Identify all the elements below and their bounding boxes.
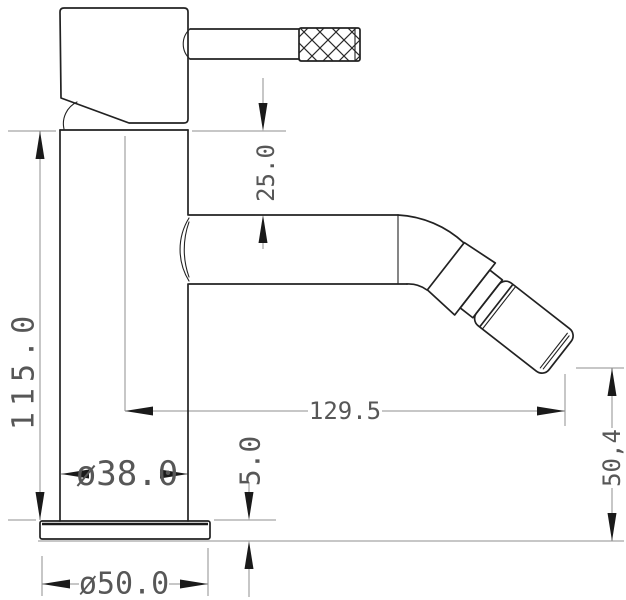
dimension-labels: 25.0 115.0 129.5 ø38.0 5.0 50,4 ø50.0 xyxy=(7,144,626,600)
arrowhead xyxy=(36,492,45,520)
lever-flange-arc xyxy=(183,29,190,59)
spout-elbow xyxy=(398,215,464,243)
spray-head-ring xyxy=(480,285,512,326)
arrowhead xyxy=(608,368,617,396)
dimension-label-body-diameter: ø38.0 xyxy=(76,454,178,494)
dimension-label-handle-to-spout: 25.0 xyxy=(252,144,280,202)
arrowhead xyxy=(125,407,153,416)
dimension-arrowheads xyxy=(36,103,617,589)
arrowhead xyxy=(245,541,254,569)
arrowhead xyxy=(537,407,565,416)
technical-drawing-canvas: 25.0 115.0 129.5 ø38.0 5.0 50,4 ø50.0 xyxy=(0,0,626,600)
arrowhead xyxy=(259,215,268,243)
dimension-label-spout-reach: 129.5 xyxy=(309,397,381,425)
spout-elbow xyxy=(407,284,427,290)
arrowhead xyxy=(42,580,70,589)
dimension-label-base-thickness: 5.0 xyxy=(234,436,267,487)
arrowhead xyxy=(180,580,208,589)
mixer-handle-housing xyxy=(60,8,188,123)
outlet-neck xyxy=(460,270,502,318)
spray-head-ring xyxy=(483,287,515,328)
handle-pivot-arc xyxy=(63,102,77,129)
arrowhead xyxy=(259,103,268,131)
dimension-label-outlet-height: 50,4 xyxy=(598,429,626,487)
arrowhead xyxy=(245,492,254,520)
knurled-grip xyxy=(299,28,360,61)
dimension-label-body-height: 115.0 xyxy=(7,310,42,430)
arrowhead xyxy=(36,131,45,159)
body-spout-joint xyxy=(184,222,189,277)
spray-head xyxy=(471,278,577,377)
dimension-label-base-diameter: ø50.0 xyxy=(79,567,169,600)
dimension-lines xyxy=(8,78,624,597)
arrowhead xyxy=(608,513,617,541)
spray-head-cap xyxy=(543,336,569,369)
outlet-assembly xyxy=(426,240,581,381)
